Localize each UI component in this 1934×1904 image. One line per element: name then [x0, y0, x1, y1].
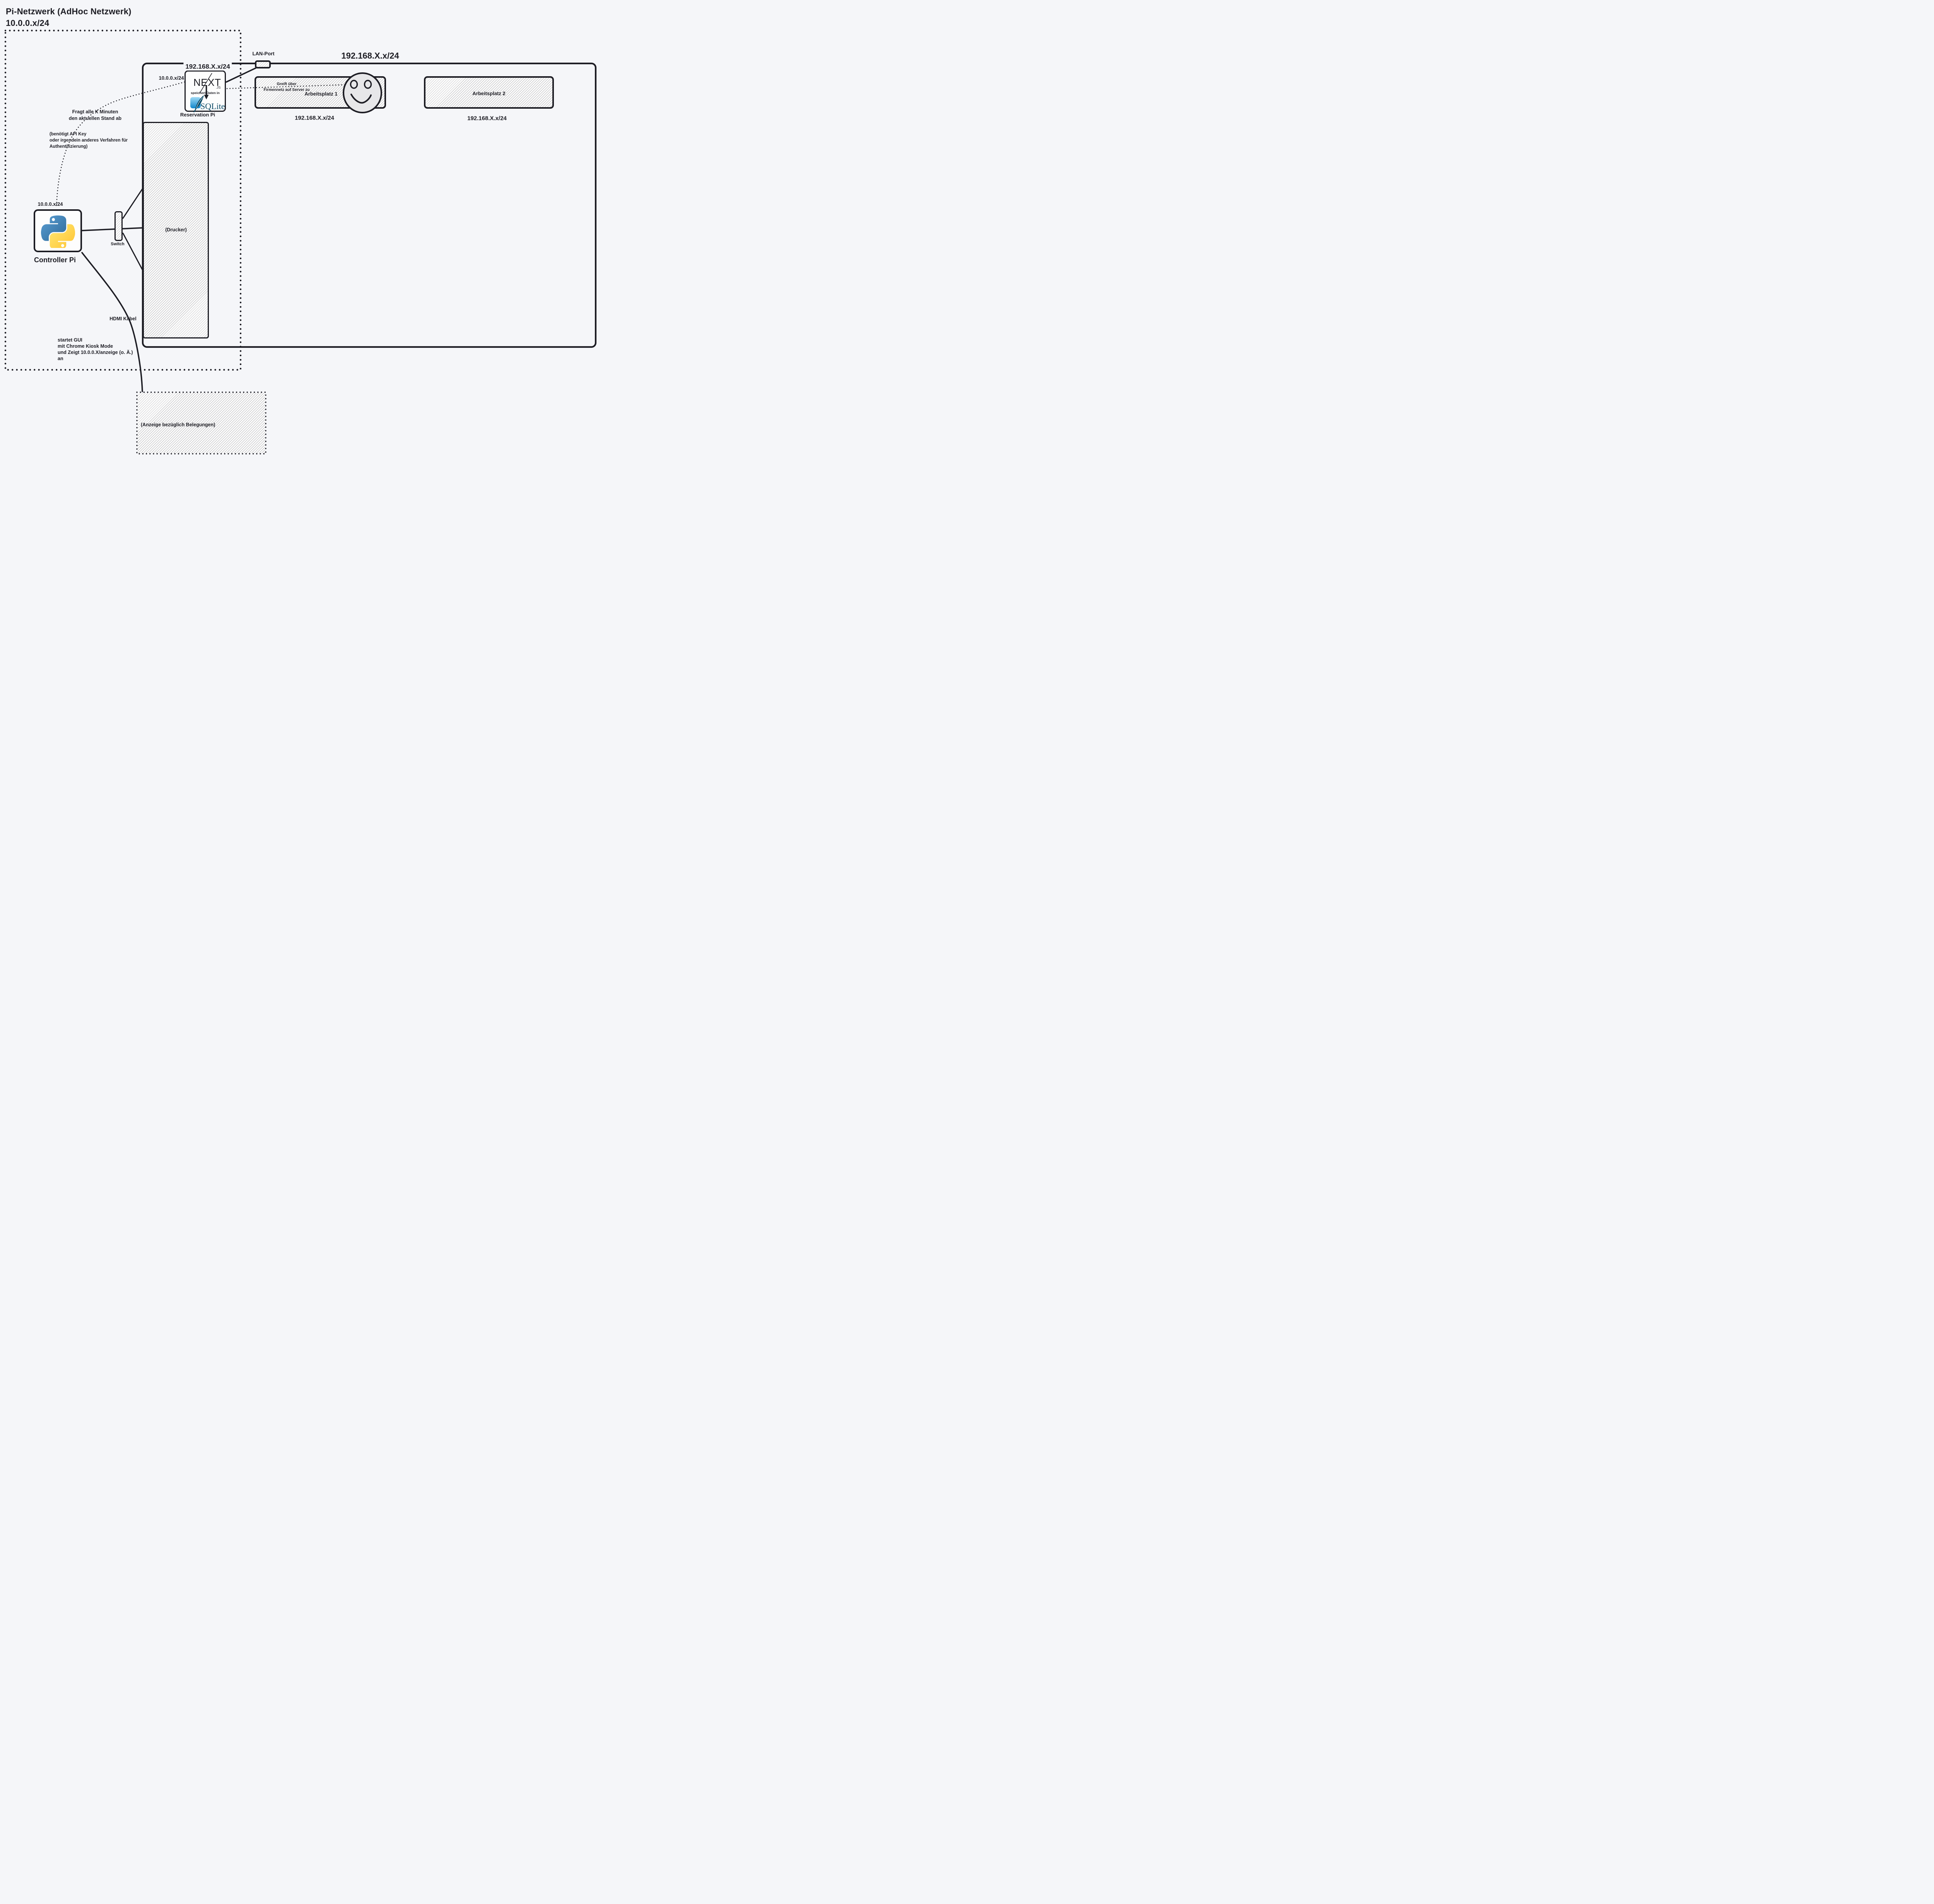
- drucker-label: (Drucker): [165, 227, 187, 233]
- access-note-line2: Firmennetz auf Server zu: [264, 88, 310, 93]
- access-note-line1: Greift über: [277, 82, 296, 87]
- gui-annotation-line4: an: [58, 356, 63, 362]
- connection-switch-to-drucker-top: [123, 188, 143, 218]
- connection-switch-to-drucker-bottom: [123, 233, 142, 270]
- diagram-lines-lower: [0, 0, 607, 458]
- arbeitsplatz1-label: Arbeitsplatz 1: [304, 91, 337, 97]
- arbeitsplatz1-subnet-label: 192.168.X.x/24: [295, 115, 334, 122]
- diagram-lines-upper: [0, 0, 607, 458]
- poll-annotation-line1: Fragt alle X Minuten: [72, 109, 118, 115]
- nextjs-suffix: .JS: [216, 85, 221, 89]
- reservation-pi-box: NEXT .JS speichert Daten in SQLite: [185, 70, 226, 112]
- gui-annotation-line3: und Zeigt 10.0.0.X/anzeige (o. Ä.): [58, 350, 133, 356]
- stores-data-label: speichert Daten in: [191, 91, 220, 95]
- sqlite-wordmark: SQLite: [200, 101, 225, 111]
- python-logo-icon: [41, 214, 75, 248]
- connection-controller-to-drucker: [82, 228, 142, 231]
- sqlite-logo-icon: SQLite: [190, 95, 225, 112]
- arbeitsplatz2-subnet-label: 192.168.X.x/24: [467, 115, 507, 123]
- api-key-annotation-line2: oder irgendein anderes Verfahren für: [50, 138, 128, 143]
- diagram-title: Pi-Netzwerk (AdHoc Netzwerk): [6, 6, 132, 17]
- network-diagram-canvas: NEXT .JS speichert Daten in SQLite: [0, 0, 607, 458]
- server-subnet-label: 192.168.X.x/24: [183, 62, 232, 70]
- anzeige-label: (Anzeige bezüglich Belegungen): [141, 422, 215, 428]
- gui-annotation-line2: mit Chrome Kiosk Mode: [58, 344, 113, 350]
- arbeitsplatz2-label: Arbeitsplatz 2: [472, 91, 505, 97]
- lan-port-box: [255, 60, 271, 68]
- server-pi-subnet-label: 10.0.0.x/24: [159, 75, 184, 81]
- switch-label: Switch: [111, 242, 124, 247]
- api-key-annotation-line3: Authentifizierung): [50, 144, 87, 149]
- smiley-icon: [342, 72, 383, 115]
- reservation-pi-label: Reservation Pi: [180, 112, 215, 118]
- company-subnet-label: 192.168.X.x/24: [341, 50, 399, 61]
- lan-port-label: LAN-Port: [252, 51, 274, 57]
- diagram-subtitle-subnet: 10.0.0.x/24: [6, 18, 49, 29]
- hdmi-cable-label: HDMI Kabel: [109, 316, 136, 322]
- poll-annotation-line2: den aktuellen Stand ab: [69, 116, 121, 122]
- controller-pi-box: [34, 209, 82, 252]
- switch-box: [114, 211, 123, 241]
- gui-annotation-line1: startet GUI: [58, 337, 82, 344]
- controller-pi-label: Controller Pi: [34, 256, 76, 265]
- controller-subnet-label: 10.0.0.x/24: [38, 201, 63, 207]
- api-key-annotation-line1: (benötigt API Key: [50, 132, 86, 137]
